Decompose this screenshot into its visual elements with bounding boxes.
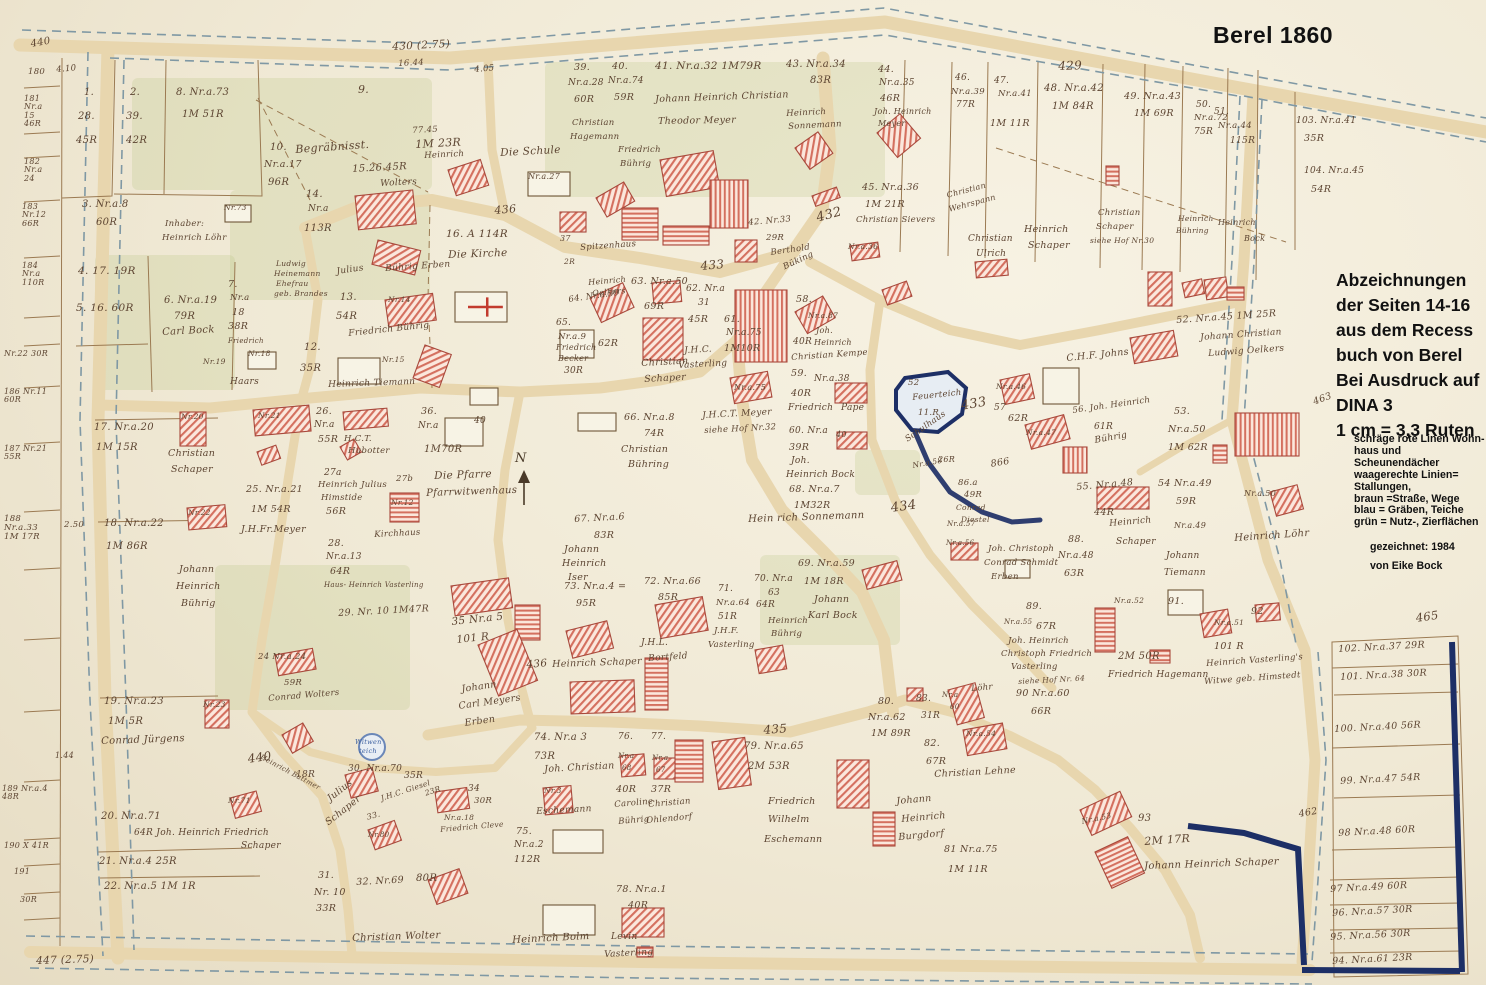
berel-1860-map: 4404.10430 (2.75)16.444.0577.45429432433… <box>0 0 1486 985</box>
legend-note: schräge rote Linen Wohn- haus und Scheun… <box>1354 434 1486 529</box>
credit-author: von Eike Bock <box>1370 560 1442 572</box>
credit-year: gezeichnet: 1984 <box>1370 541 1455 553</box>
printed-annotations-layer: Berel 1860 Abzeichnungen der Seiten 14-1… <box>0 0 1486 985</box>
annotation-note: Abzeichnungen der Seiten 14-16 aus dem R… <box>1336 268 1479 443</box>
map-title: Berel 1860 <box>1213 22 1333 49</box>
